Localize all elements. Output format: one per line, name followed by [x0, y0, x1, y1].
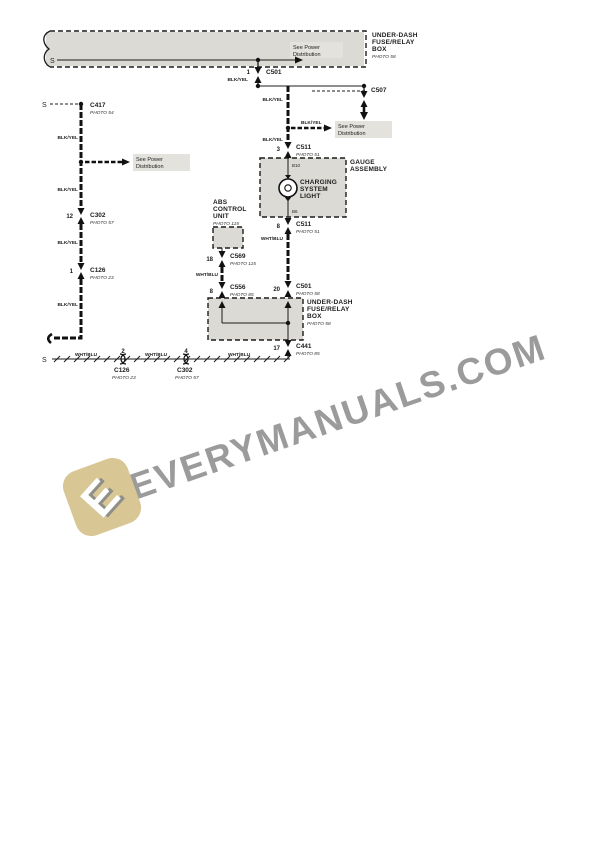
wiring-diagram-svg: See Power Distribution S UNDER-DASH FUSE… — [0, 0, 612, 866]
gauge-assembly-box: GAUGE ASSEMBLY B10 CHARGING SYSTEM LIGHT… — [260, 158, 388, 217]
c441-name: C441 — [296, 343, 312, 350]
see-power-note-3-line2: Distribution — [136, 164, 164, 170]
c126-left-pin: 1 — [70, 269, 74, 275]
connector-symbol — [285, 281, 292, 288]
junction-dot — [286, 126, 290, 130]
splice-symbol-c417: S — [42, 102, 47, 109]
c511-top-photo: PHOTO 51 — [296, 152, 320, 158]
c511-top-name: C511 — [296, 144, 312, 151]
wire-label-whtblu-B3: WHT/BLU — [228, 352, 251, 358]
connector-c511-top: 3 C511 PHOTO 51 — [277, 142, 320, 158]
c302-left-pin: 12 — [66, 214, 73, 220]
connector-c556: 8 C556 PHOTO 85 — [210, 282, 254, 298]
abs-label-1: ABS — [213, 199, 228, 206]
c511-bottom-photo: PHOTO 51 — [296, 229, 320, 235]
wire-blkyel-left-3 — [52, 279, 81, 338]
c501-top-pin: 1 — [247, 70, 251, 76]
c441-photo: PHOTO 85 — [296, 351, 320, 357]
connector-symbol — [78, 217, 85, 224]
c556-name: C556 — [230, 284, 246, 291]
wire-label-blkyel-lower: BLK/YEL — [262, 137, 283, 143]
c569-photo: PHOTO 115 — [230, 261, 256, 267]
c126-left-photo: PHOTO 23 — [90, 275, 114, 281]
connector-symbol — [285, 340, 292, 347]
gauge-pin-bottom: B6 — [292, 209, 298, 214]
c501-bottom-photo: PHOTO 58 — [296, 291, 320, 297]
wire-label-blkyel-c501: BLK/YEL — [227, 77, 248, 83]
c126-bottom-photo: PHOTO 23 — [112, 375, 136, 381]
c302-bottom-name: C302 — [177, 367, 193, 374]
fuse-box-bottom-label-3: BOX — [307, 313, 322, 320]
gauge-label-1: GAUGE — [350, 159, 375, 166]
fuse-box-bottom-label-2: FUSE/RELAY — [307, 306, 350, 313]
splice-symbol-bottom: S — [42, 357, 47, 364]
see-power-note-1-line2: Distribution — [293, 52, 321, 58]
c302-left-name: C302 — [90, 212, 106, 219]
fuse-box-top-label-2: FUSE/RELAY — [372, 39, 415, 46]
fuse-box-top-label-1: UNDER-DASH — [372, 32, 418, 39]
c511-bottom-pin: 8 — [277, 224, 281, 230]
fuse-relay-box-bottom: UNDER-DASH FUSE/RELAY BOX PHOTO 58 — [208, 298, 353, 340]
fuse-relay-box-top: See Power Distribution S UNDER-DASH FUSE… — [44, 31, 418, 67]
connector-symbol — [285, 142, 292, 149]
wire-label-blkyel-upper: BLK/YEL — [262, 97, 283, 103]
left-column: S C417 PHOTO 54 BLK/YEL See Power Distri… — [42, 102, 190, 343]
connector-symbol — [285, 151, 292, 158]
c302-left-photo: PHOTO 57 — [90, 220, 114, 226]
c569-name: C569 — [230, 253, 246, 260]
connector-symbol — [219, 291, 226, 298]
gauge-label-2: ASSEMBLY — [350, 166, 388, 173]
arrowhead-right — [324, 125, 332, 132]
c511-bottom-name: C511 — [296, 221, 312, 228]
connector-symbol — [78, 208, 85, 215]
connector-symbol — [285, 349, 292, 356]
see-power-note-3-line1: See Power — [136, 157, 163, 163]
abs-label-2: CONTROL — [213, 206, 247, 213]
wire-label-blkyel-L2: BLK/YEL — [57, 187, 78, 193]
connector-symbol — [255, 67, 262, 74]
c501-bottom-pin: 20 — [273, 287, 280, 293]
see-power-note-2-line1: See Power — [338, 124, 365, 130]
abs-label-3: UNIT — [213, 213, 229, 220]
see-power-note-2-line2: Distribution — [338, 131, 366, 137]
fuse-box-bottom-photo: PHOTO 58 — [307, 321, 331, 327]
manual-scan-page: See Power Distribution S UNDER-DASH FUSE… — [0, 0, 612, 866]
charging-light-label-3: LIGHT — [300, 193, 321, 200]
wire-label-blkyel-branch: BLK/YEL — [301, 120, 322, 126]
wire-label-whtblu-right: WHT/BLU — [261, 236, 284, 242]
connector-symbol — [78, 263, 85, 270]
arrowhead-right — [122, 159, 130, 166]
c556-photo: PHOTO 85 — [230, 292, 254, 298]
fuse-box-bottom-label-1: UNDER-DASH — [307, 299, 353, 306]
connector-c569: 18 C569 PHOTO 115 — [206, 251, 256, 267]
c441-pin: 17 — [273, 346, 280, 352]
abs-control-unit: ABS CONTROL UNIT PHOTO 115 — [213, 199, 247, 251]
c501-bottom-name: C501 — [296, 283, 312, 290]
c302-bottom-photo: PHOTO 57 — [175, 375, 199, 381]
charging-light-label-2: SYSTEM — [300, 186, 328, 193]
gauge-pin-top: B10 — [292, 163, 301, 168]
c126-left-name: C126 — [90, 267, 106, 274]
connector-c511-bottom: 8 C511 PHOTO 51 WHT/BLU — [261, 218, 320, 242]
c417-name: C417 — [90, 102, 106, 109]
c569-pin: 18 — [206, 257, 213, 263]
c501-top-name: C501 — [266, 69, 282, 76]
wire-label-whtblu-abs: WHT/BLU — [196, 272, 219, 278]
wire-label-blkyel-L4: BLK/YEL — [57, 302, 78, 308]
bottom-whtblu-run: S WHT/BLU 2 C126 PHOTO 23 WHT/BLU 4 C302… — [42, 349, 290, 381]
c126-bottom-name: C126 — [114, 367, 130, 374]
blkyel-vertical-right: BLK/YEL BLK/YEL BLK/YEL — [262, 86, 332, 143]
c511-top-pin: 3 — [277, 147, 281, 153]
c507-name: C507 — [371, 87, 387, 94]
wire-label-whtblu-B1: WHT/BLU — [75, 352, 98, 358]
connector-symbol — [285, 227, 292, 234]
connector-symbol — [78, 272, 85, 279]
arrowhead-down — [360, 112, 368, 120]
connector-symbol — [361, 91, 368, 98]
wire-label-blkyel-L3: BLK/YEL — [57, 240, 78, 246]
connector-symbol — [285, 290, 292, 297]
wire-label-blkyel-L1: BLK/YEL — [57, 135, 78, 141]
junction-dot — [79, 160, 83, 164]
connector-symbol — [255, 76, 262, 83]
see-power-note-right: See Power Distribution — [335, 121, 392, 138]
connector-c501-bottom: 20 C501 PHOTO 58 — [273, 281, 320, 297]
connector-symbol — [285, 218, 292, 225]
c556-pin: 8 — [210, 289, 214, 295]
connector-symbol — [219, 260, 226, 267]
connector-symbol — [361, 100, 368, 107]
connector-symbol — [219, 282, 226, 289]
charging-light-label-1: CHARGING — [300, 179, 337, 186]
watermark: EVERYMANUALS.COM E E — [58, 326, 551, 540]
abs-photo: PHOTO 115 — [213, 221, 239, 227]
abs-box — [213, 227, 243, 248]
fuse-box-top-label-3: BOX — [372, 46, 387, 53]
see-power-note-1-line1: See Power — [293, 45, 320, 51]
splice-symbol-top: S — [50, 58, 55, 65]
wire-label-whtblu-B2: WHT/BLU — [145, 352, 168, 358]
c417-photo: PHOTO 54 — [90, 110, 114, 116]
connector-c441: 17 C441 PHOTO 85 — [273, 340, 320, 359]
bulb-symbol — [279, 179, 297, 197]
fuse-box-top-photo: PHOTO 58 — [372, 54, 396, 60]
connector-symbol — [219, 251, 226, 258]
wire-end-hook — [48, 334, 52, 343]
